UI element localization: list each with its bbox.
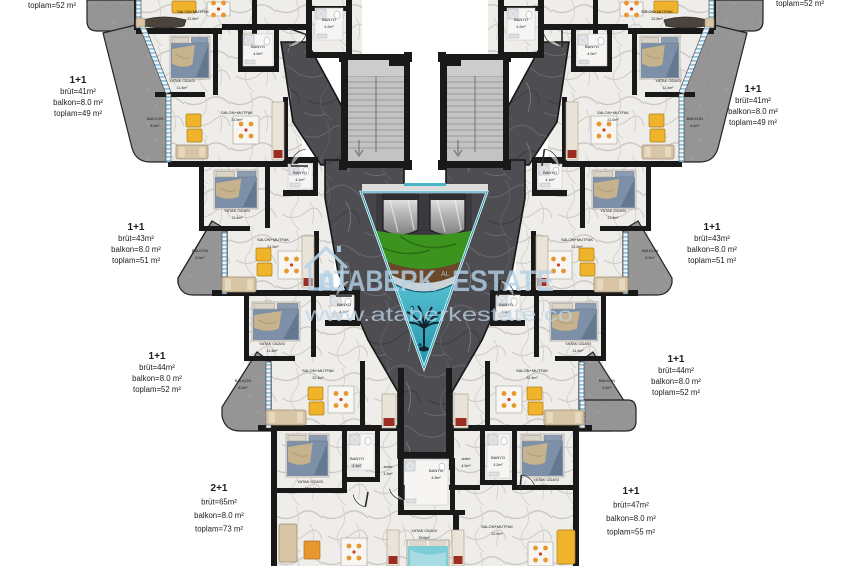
- svg-text:BANYO: BANYO: [491, 455, 505, 460]
- svg-text:8.0m²: 8.0m²: [238, 386, 248, 390]
- svg-text:BALKON: BALKON: [192, 248, 208, 253]
- svg-text:brüt=41m²: brüt=41m²: [60, 87, 96, 96]
- svg-text:4.0m²: 4.0m²: [587, 52, 597, 56]
- svg-text:BALKON: BALKON: [599, 378, 615, 383]
- svg-text:toplam=52 m²: toplam=52 m²: [652, 388, 700, 397]
- svg-text:22.4m²: 22.4m²: [312, 376, 324, 380]
- svg-text:SALON+MUTFAK: SALON+MUTFAK: [561, 237, 593, 242]
- svg-text:12.8m²: 12.8m²: [304, 487, 316, 491]
- svg-text:SALON+MUTFAK: SALON+MUTFAK: [597, 110, 629, 115]
- svg-text:brüt=43m²: brüt=43m²: [118, 234, 154, 243]
- svg-text:balkon=8.0 m²: balkon=8.0 m²: [132, 374, 182, 383]
- svg-text:SALON+MUTFAK: SALON+MUTFAK: [257, 237, 289, 242]
- svg-text:1+1: 1+1: [668, 354, 685, 365]
- svg-text:1+1: 1+1: [70, 75, 87, 86]
- svg-text:balkon=8.0 m²: balkon=8.0 m²: [687, 245, 737, 254]
- svg-text:8.0m²: 8.0m²: [150, 124, 160, 128]
- svg-text:8.0m²: 8.0m²: [195, 256, 205, 260]
- svg-text:21.0m²: 21.0m²: [267, 245, 279, 249]
- svg-text:balkon=8.0 m²: balkon=8.0 m²: [728, 107, 778, 116]
- svg-text:13.4m²: 13.4m²: [607, 216, 619, 220]
- svg-text:12.0m²: 12.0m²: [540, 485, 552, 489]
- svg-text:4.3m²: 4.3m²: [352, 464, 362, 468]
- svg-text:brüt=44m²: brüt=44m²: [658, 366, 694, 375]
- svg-text:8.0m²: 8.0m²: [690, 124, 700, 128]
- svg-text:YATAK ODASI: YATAK ODASI: [297, 479, 323, 484]
- svg-text:4.9m²: 4.9m²: [431, 476, 441, 480]
- svg-text:BANYO: BANYO: [251, 44, 265, 49]
- svg-text:AL: AL: [441, 271, 450, 278]
- svg-text:SALON+MUTFAK: SALON+MUTFAK: [641, 9, 673, 14]
- svg-text:BALKON: BALKON: [642, 248, 658, 253]
- svg-text:11.4m²: 11.4m²: [177, 86, 189, 90]
- svg-text:11.4m²: 11.4m²: [267, 349, 279, 353]
- svg-text:ATABERK: ATABERK: [318, 265, 436, 298]
- svg-text:ESTATE: ESTATE: [452, 265, 554, 298]
- svg-text:YATAK ODASI: YATAK ODASI: [411, 528, 437, 533]
- svg-text:toplam=49 m²: toplam=49 m²: [54, 109, 102, 118]
- svg-text:SALON+MUTFAK: SALON+MUTFAK: [481, 524, 513, 529]
- svg-text:BANYO: BANYO: [585, 44, 599, 49]
- svg-text:1+1: 1+1: [745, 84, 762, 95]
- svg-text:toplam=52 m²: toplam=52 m²: [28, 1, 76, 10]
- svg-text:22.4m²: 22.4m²: [526, 376, 538, 380]
- svg-text:10.0m²: 10.0m²: [418, 536, 430, 540]
- svg-text:toplam=51 m²: toplam=51 m²: [112, 256, 160, 265]
- svg-text:YATAK ODASI: YATAK ODASI: [565, 341, 591, 346]
- svg-text:www.ataberkestate.co: www.ataberkestate.co: [304, 305, 573, 326]
- svg-text:4.2m²: 4.2m²: [516, 25, 526, 29]
- svg-text:toplam=49 m²: toplam=49 m²: [729, 118, 777, 127]
- svg-text:BANYO: BANYO: [543, 170, 557, 175]
- svg-text:BALKON: BALKON: [147, 116, 163, 121]
- svg-text:balkon=8.0 m²: balkon=8.0 m²: [651, 377, 701, 386]
- svg-text:SALON+MUTFAK: SALON+MUTFAK: [516, 368, 548, 373]
- svg-text:1+1: 1+1: [128, 222, 145, 233]
- svg-text:BANYO: BANYO: [429, 468, 443, 473]
- svg-text:toplam=51 m²: toplam=51 m²: [688, 256, 736, 265]
- svg-text:brüt=41m²: brüt=41m²: [735, 96, 771, 105]
- svg-text:BALKON: BALKON: [235, 378, 251, 383]
- svg-text:brüt=65m²: brüt=65m²: [201, 498, 237, 507]
- svg-text:balkon=8.0 m²: balkon=8.0 m²: [53, 98, 103, 107]
- svg-text:8.0m²: 8.0m²: [602, 386, 612, 390]
- svg-text:3.3m²: 3.3m²: [383, 472, 393, 476]
- svg-text:YATAK ODASI: YATAK ODASI: [533, 477, 559, 482]
- svg-text:brüt=44m²: brüt=44m²: [139, 363, 175, 372]
- svg-text:YATAK ODASI: YATAK ODASI: [600, 208, 626, 213]
- svg-text:4.2m²: 4.2m²: [324, 25, 334, 29]
- svg-text:13.4m²: 13.4m²: [231, 216, 243, 220]
- svg-text:BANYO: BANYO: [322, 17, 336, 22]
- svg-text:toplam=55 m²: toplam=55 m²: [607, 528, 655, 537]
- svg-text:balkon=8.0 m²: balkon=8.0 m²: [194, 511, 244, 520]
- svg-text:11.4m²: 11.4m²: [573, 349, 585, 353]
- svg-text:22.8m²: 22.8m²: [187, 17, 199, 21]
- svg-text:21.0m²: 21.0m²: [571, 245, 583, 249]
- svg-text:antre: antre: [461, 456, 471, 461]
- svg-text:1+1: 1+1: [623, 486, 640, 497]
- svg-text:brüt=47m²: brüt=47m²: [613, 501, 649, 510]
- svg-text:balkon=8.0 m²: balkon=8.0 m²: [606, 514, 656, 523]
- svg-text:BANYO: BANYO: [350, 456, 364, 461]
- svg-text:toplam=52 m²: toplam=52 m²: [133, 385, 181, 394]
- svg-text:2+1: 2+1: [211, 483, 228, 494]
- svg-text:4.0m²: 4.0m²: [253, 52, 263, 56]
- svg-text:BANYO: BANYO: [293, 170, 307, 175]
- svg-text:4.1m²: 4.1m²: [545, 178, 555, 182]
- svg-text:BALKON: BALKON: [687, 116, 703, 121]
- svg-text:22.0m²: 22.0m²: [491, 532, 503, 536]
- svg-text:4.1m²: 4.1m²: [295, 178, 305, 182]
- svg-text:balkon=8.0 m²: balkon=8.0 m²: [111, 245, 161, 254]
- svg-text:toplam=73 m²: toplam=73 m²: [195, 525, 243, 534]
- svg-text:brüt=43m²: brüt=43m²: [694, 234, 730, 243]
- svg-text:SALON+MUTFAK: SALON+MUTFAK: [177, 9, 209, 14]
- svg-text:21.0m²: 21.0m²: [607, 118, 619, 122]
- svg-text:antre: antre: [383, 464, 393, 469]
- svg-text:YATAK ODASI: YATAK ODASI: [259, 341, 285, 346]
- svg-text:22.8m²: 22.8m²: [651, 17, 663, 21]
- svg-text:SALON+MUTFAK: SALON+MUTFAK: [302, 368, 334, 373]
- svg-text:SALON+MUTFAK: SALON+MUTFAK: [221, 110, 253, 115]
- svg-text:YATAK ODASI: YATAK ODASI: [655, 78, 681, 83]
- svg-text:11.4m²: 11.4m²: [663, 86, 675, 90]
- svg-text:1+1: 1+1: [149, 351, 166, 362]
- svg-text:4.2m²: 4.2m²: [493, 463, 503, 467]
- svg-text:21.5m²: 21.5m²: [231, 118, 243, 122]
- svg-text:1+1: 1+1: [704, 222, 721, 233]
- svg-text:toplam=52 m²: toplam=52 m²: [776, 0, 824, 8]
- svg-text:YATAK ODASI: YATAK ODASI: [224, 208, 250, 213]
- svg-text:YATAK ODASI: YATAK ODASI: [169, 78, 195, 83]
- svg-text:8.0m²: 8.0m²: [645, 256, 655, 260]
- svg-text:4.0m²: 4.0m²: [461, 464, 471, 468]
- svg-text:BANYO: BANYO: [514, 17, 528, 22]
